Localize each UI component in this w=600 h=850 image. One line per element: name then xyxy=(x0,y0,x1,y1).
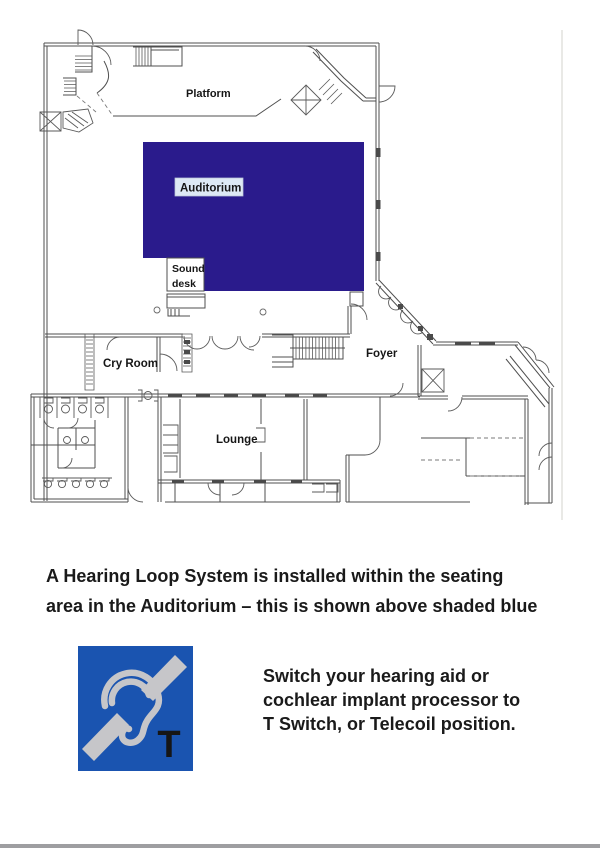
foyer-label: Foyer xyxy=(366,348,398,360)
bottom-divider-bar xyxy=(0,844,600,848)
loop-instructions: Switch your hearing aid or cochlear impl… xyxy=(263,664,563,736)
hearing-loop-icon: T xyxy=(78,646,193,771)
loop-instructions-line-2: cochlear implant processor to xyxy=(263,688,563,712)
platform-label: Platform xyxy=(186,88,231,100)
floor-plan-drawing: Platform Auditorium Sound desk Cry Room … xyxy=(0,0,600,530)
caption-line-2: area in the Auditorium – this is shown a… xyxy=(46,591,566,621)
sound-desk-label-line2: desk xyxy=(172,278,196,290)
lounge-label: Lounge xyxy=(216,434,258,446)
diamond-lift xyxy=(291,85,321,115)
caption-line-1: A Hearing Loop System is installed withi… xyxy=(46,561,566,591)
caption: A Hearing Loop System is installed withi… xyxy=(46,561,566,621)
hearing-loop-T-icon: T xyxy=(78,646,193,771)
hearing-loop-notice-page: Platform Auditorium Sound desk Cry Room … xyxy=(0,0,600,850)
loop-instructions-line-1: Switch your hearing aid or xyxy=(263,664,563,688)
auditorium-label: Auditorium xyxy=(180,183,241,195)
x-box xyxy=(40,112,61,131)
icon-T-letter: T xyxy=(157,724,180,766)
loop-instructions-line-3: T Switch, or Telecoil position. xyxy=(263,712,563,736)
cry-room-label: Cry Room xyxy=(103,358,158,370)
sound-desk-label-line1: Sound xyxy=(172,263,205,275)
floor-plan: Platform Auditorium Sound desk Cry Room … xyxy=(0,0,600,530)
